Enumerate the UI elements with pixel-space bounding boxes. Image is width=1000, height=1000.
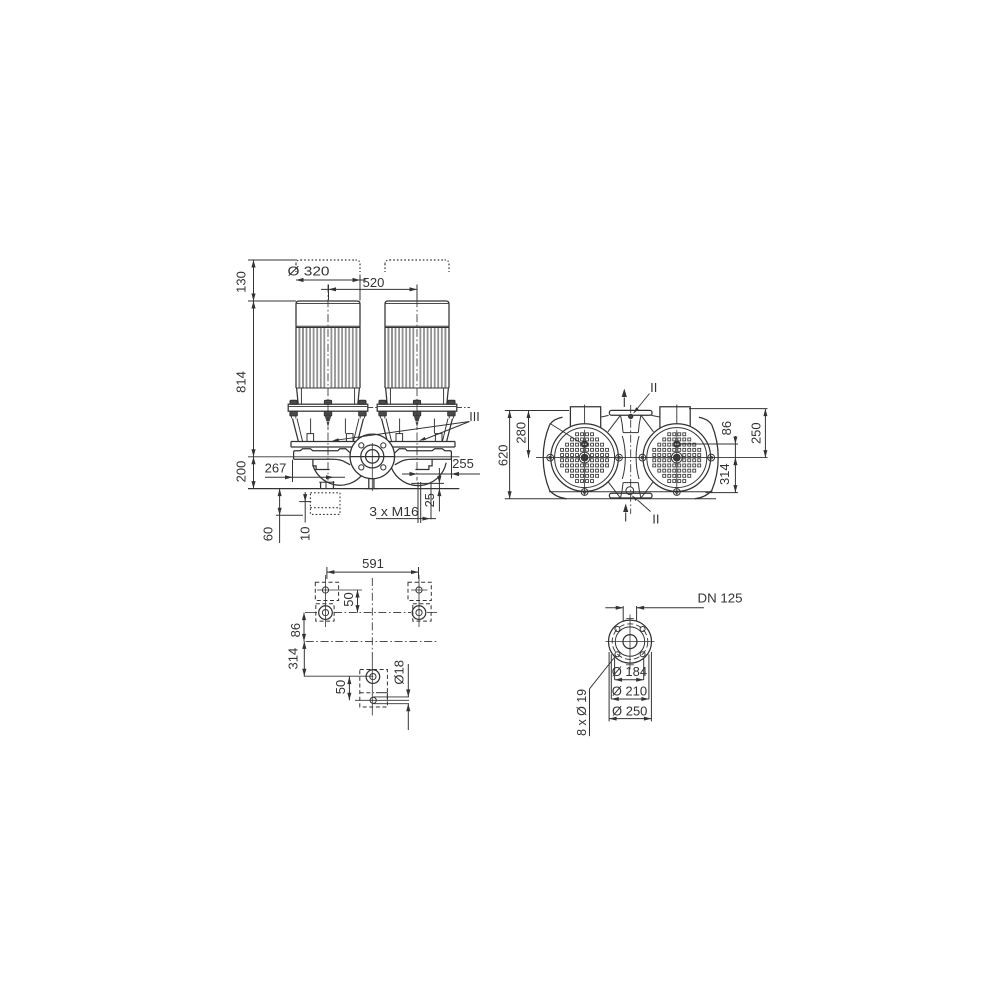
svg-text:50: 50 (333, 680, 348, 694)
svg-text:60: 60 (261, 527, 276, 541)
svg-text:267: 267 (265, 461, 287, 476)
svg-text:25: 25 (422, 493, 437, 507)
svg-text:86: 86 (719, 421, 734, 435)
svg-text:591: 591 (362, 556, 384, 571)
svg-text:814: 814 (233, 371, 248, 393)
svg-text:Ø18: Ø18 (391, 660, 406, 685)
svg-text:280: 280 (513, 422, 528, 444)
svg-text:314: 314 (285, 648, 300, 670)
svg-text:520: 520 (363, 275, 385, 290)
svg-text:II: II (650, 380, 657, 395)
svg-text:III: III (469, 410, 479, 424)
svg-text:130: 130 (233, 271, 248, 293)
svg-text:86: 86 (288, 623, 303, 637)
svg-text:50: 50 (341, 592, 356, 606)
svg-text:314: 314 (717, 463, 732, 485)
svg-text:10: 10 (298, 527, 313, 541)
svg-text:620: 620 (495, 444, 510, 466)
svg-text:250: 250 (749, 422, 764, 444)
svg-text:Ø 250: Ø 250 (612, 704, 647, 719)
svg-text:255: 255 (452, 456, 474, 471)
svg-text:Ø 184: Ø 184 (612, 664, 647, 679)
svg-text:200: 200 (233, 461, 248, 483)
svg-text:II: II (652, 511, 659, 526)
svg-text:Ø 320: Ø 320 (288, 264, 330, 279)
svg-text:Ø 210: Ø 210 (612, 683, 647, 698)
svg-text:DN 125: DN 125 (698, 590, 743, 605)
svg-text:8 x Ø 19: 8 x Ø 19 (574, 689, 589, 736)
svg-text:3 x M16: 3 x M16 (369, 504, 419, 519)
